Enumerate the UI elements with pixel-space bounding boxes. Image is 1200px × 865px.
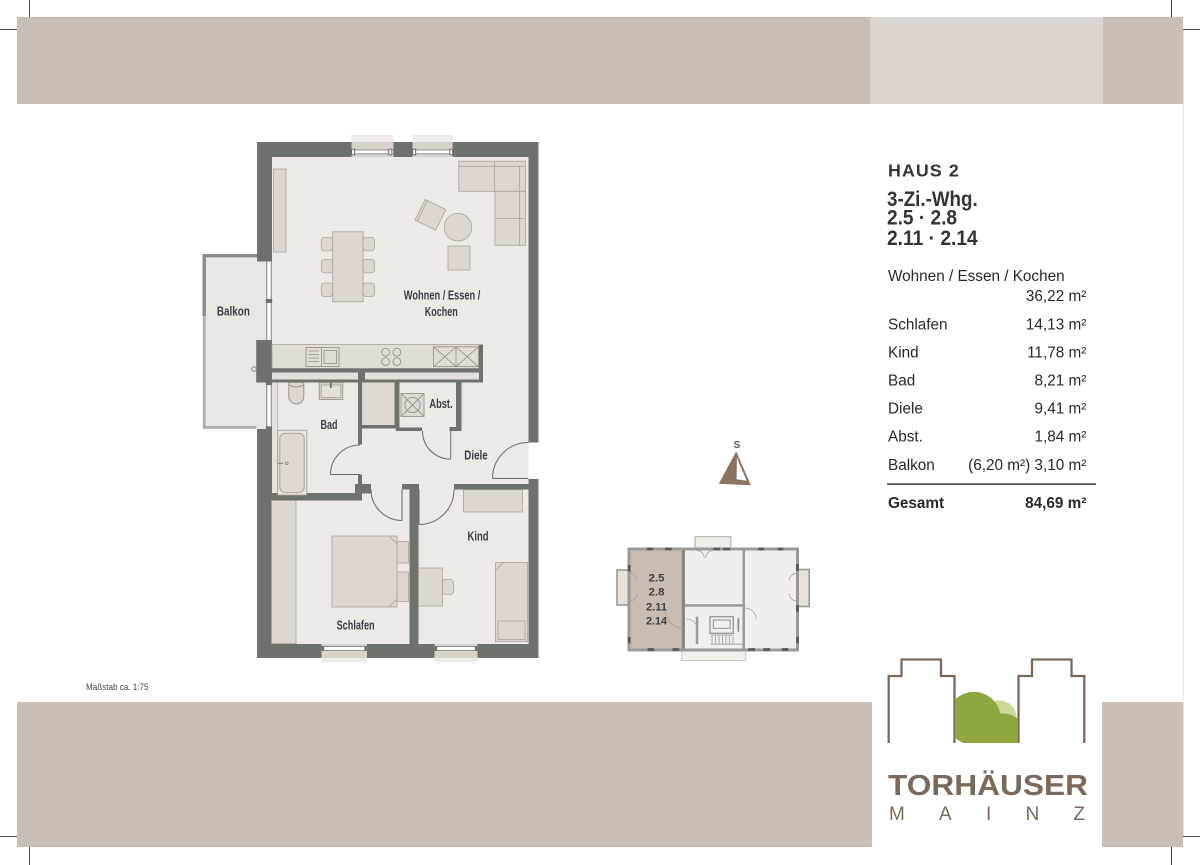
svg-text:Kind: Kind — [888, 344, 919, 361]
svg-text:Diele: Diele — [464, 448, 487, 463]
svg-text:MAINZ: MAINZ — [889, 804, 1085, 825]
svg-text:84,69 m²: 84,69 m² — [1025, 495, 1086, 512]
svg-text:2.11 · 2.14: 2.11 · 2.14 — [887, 226, 978, 250]
svg-text:Bad: Bad — [888, 372, 915, 389]
svg-text:Diele: Diele — [888, 400, 923, 417]
svg-text:Gesamt: Gesamt — [888, 495, 944, 512]
svg-text:Abst.: Abst. — [888, 428, 923, 445]
svg-text:Schlafen: Schlafen — [337, 618, 375, 633]
svg-text:14,13 m²: 14,13 m² — [1026, 316, 1086, 333]
svg-text:8,21 m²: 8,21 m² — [1034, 372, 1086, 389]
svg-text:Balkon: Balkon — [217, 304, 250, 319]
svg-text:36,22 m²: 36,22 m² — [1026, 288, 1086, 305]
svg-text:TORHÄUSER: TORHÄUSER — [888, 769, 1088, 802]
svg-text:Schlafen: Schlafen — [888, 316, 948, 333]
svg-text:S: S — [734, 440, 741, 451]
svg-text:HAUS 2: HAUS 2 — [888, 161, 960, 181]
svg-text:9,41 m²: 9,41 m² — [1034, 400, 1086, 417]
svg-text:2.8: 2.8 — [649, 587, 665, 599]
svg-text:Wohnen / Essen /: Wohnen / Essen / — [404, 288, 481, 303]
svg-text:2.5: 2.5 — [649, 573, 665, 585]
svg-text:Abst.: Abst. — [429, 396, 452, 411]
svg-text:Kind: Kind — [468, 529, 489, 544]
svg-text:Maßstab ca. 1:75: Maßstab ca. 1:75 — [86, 682, 149, 692]
svg-text:Kochen: Kochen — [425, 304, 458, 319]
svg-text:2.11: 2.11 — [646, 602, 667, 614]
svg-text:(6,20 m²) 3,10 m²: (6,20 m²) 3,10 m² — [968, 457, 1086, 474]
svg-text:Bad: Bad — [321, 417, 338, 432]
svg-text:1,84 m²: 1,84 m² — [1034, 428, 1086, 445]
svg-text:Balkon: Balkon — [888, 457, 935, 474]
svg-text:11,78 m²: 11,78 m² — [1027, 344, 1086, 361]
svg-text:Wohnen / Essen / Kochen: Wohnen / Essen / Kochen — [888, 268, 1065, 285]
svg-text:2.14: 2.14 — [646, 616, 668, 628]
